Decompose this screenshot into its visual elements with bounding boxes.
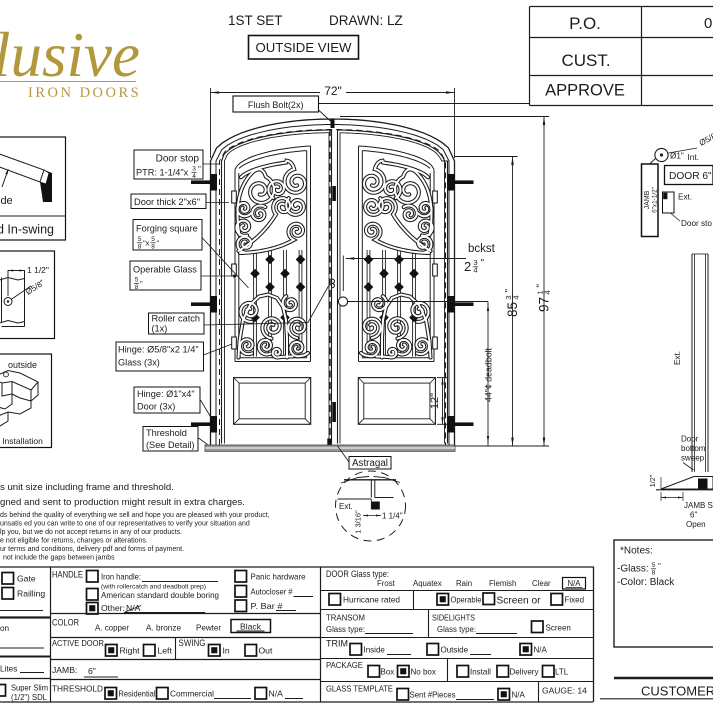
svg-text:6": 6" [88, 666, 96, 676]
svg-text:GAUGE: 14: GAUGE: 14 [542, 686, 587, 696]
svg-text:CUST.: CUST. [561, 51, 610, 70]
svg-text:Out: Out [259, 646, 273, 656]
svg-text:Ext.: Ext. [673, 351, 682, 365]
svg-text:ACTIVE DOOR: ACTIVE DOOR [52, 638, 104, 648]
svg-text:Iron handle:: Iron handle: [101, 572, 141, 582]
svg-text:Ext.: Ext. [678, 193, 692, 202]
svg-text:4: 4 [473, 266, 477, 275]
svg-text:Frost: Frost [377, 579, 396, 588]
svg-text:Inside: Inside [364, 646, 386, 655]
svg-text:outside: outside [8, 360, 37, 370]
svg-text:3: 3 [192, 166, 196, 173]
svg-text:PACKAGE: PACKAGE [326, 660, 363, 670]
svg-text:IRON DOORS: IRON DOORS [28, 85, 141, 101]
svg-text:A. bronze: A. bronze [146, 623, 181, 633]
svg-text:Door thick 2"x6": Door thick 2"x6" [134, 197, 200, 207]
svg-text:1 1/4": 1 1/4" [382, 512, 403, 521]
svg-text:sweep: sweep [681, 454, 705, 463]
svg-text:Railling: Railling [17, 589, 45, 599]
svg-text:Black: Black [240, 622, 262, 632]
svg-text:00: 00 [704, 15, 713, 32]
svg-text:5: 5 [135, 277, 139, 284]
svg-text:Door stop: Door stop [156, 154, 200, 165]
svg-text:on: on [0, 624, 10, 633]
svg-text:P.O.: P.O. [569, 14, 601, 33]
svg-text:(1/2") SDL: (1/2") SDL [11, 693, 48, 702]
svg-text:Operable: Operable [451, 596, 483, 605]
svg-text:N/A: N/A [534, 646, 548, 655]
svg-text:DOOR Glass type:: DOOR Glass type: [326, 569, 389, 579]
svg-text:Clear: Clear [532, 579, 551, 588]
svg-text:APPROVE: APPROVE [545, 82, 625, 100]
svg-text:Sent #Pieces: Sent #Pieces [410, 691, 456, 700]
svg-text:Left: Left [158, 646, 173, 656]
svg-text:Door sto: Door sto [681, 219, 712, 228]
svg-text:OUTSIDE VIEW: OUTSIDE VIEW [256, 40, 353, 55]
svg-text:4: 4 [543, 290, 552, 294]
svg-text:ur terms and conditions, deliv: ur terms and conditions, delivery pdf an… [0, 546, 184, 553]
svg-text:8: 8 [151, 244, 155, 251]
svg-text:Other:: Other: [101, 603, 125, 613]
svg-text:Fixed: Fixed [565, 596, 585, 605]
svg-text:Ø1": Ø1" [670, 152, 684, 161]
svg-text:8: 8 [652, 570, 656, 577]
svg-text:Astragal: Astragal [352, 458, 388, 469]
svg-text:No box: No box [411, 668, 436, 677]
svg-text:1 1/2": 1 1/2" [27, 265, 49, 275]
svg-text:GLASS TEMPLATE: GLASS TEMPLATE [326, 684, 393, 694]
svg-text:44"¢ deadbolt: 44"¢ deadbolt [484, 347, 494, 402]
svg-text:SWING: SWING [179, 638, 206, 648]
svg-text:TRIM: TRIM [326, 639, 348, 649]
svg-text:A. copper: A. copper [95, 623, 129, 633]
svg-text:N/A: N/A [512, 691, 526, 700]
svg-text:2: 2 [464, 259, 471, 274]
svg-text:1 3/16": 1 3/16" [354, 510, 363, 534]
svg-text:bckst: bckst [468, 243, 496, 255]
svg-text:Gate: Gate [17, 574, 36, 584]
svg-text:not include the gaps between j: not include the gaps between jambs [3, 555, 115, 562]
svg-text:Glass type:: Glass type: [437, 624, 476, 634]
svg-text:Delivery: Delivery [510, 668, 539, 677]
svg-text:American standard double borin: American standard double boring [101, 590, 219, 600]
svg-text:6"x1-1/2": 6"x1-1/2" [652, 187, 659, 213]
svg-text:LTL: LTL [555, 668, 569, 677]
svg-text:": " [157, 239, 160, 248]
svg-text:bottom: bottom [681, 444, 706, 453]
svg-text:5: 5 [138, 236, 142, 243]
svg-text:6": 6" [690, 511, 697, 520]
svg-text:": " [658, 562, 661, 571]
svg-text:e not eligible for returns, ch: e not eligible for returns, changes or a… [0, 538, 148, 545]
svg-text:Roller catch: Roller catch [152, 314, 201, 324]
svg-text:DRAWN: LZ: DRAWN: LZ [329, 13, 403, 28]
svg-text:5: 5 [652, 562, 656, 569]
svg-text:-Glass:: -Glass: [617, 564, 649, 575]
svg-text:": " [504, 289, 515, 293]
svg-text:JAMB: JAMB [644, 190, 651, 209]
svg-text:8: 8 [138, 244, 142, 251]
svg-text:Flush Bolt(2x): Flush Bolt(2x) [248, 100, 304, 110]
svg-text:Glass (3x): Glass (3x) [118, 358, 160, 368]
svg-text:8: 8 [135, 284, 139, 291]
svg-text:r Installation: r Installation [0, 436, 43, 446]
svg-text:Install: Install [470, 668, 491, 677]
svg-text:N/A: N/A [568, 579, 582, 588]
svg-text:(1x): (1x) [152, 324, 168, 334]
svg-text:JAMB:: JAMB: [52, 665, 77, 675]
svg-text:Hurricane rated: Hurricane rated [343, 596, 400, 605]
svg-text:1/2": 1/2" [648, 474, 657, 487]
svg-text:Aquatex: Aquatex [413, 579, 442, 588]
svg-text:4: 4 [192, 173, 196, 180]
svg-text:s unit size including frame an: s unit size including frame and threshol… [0, 482, 174, 493]
svg-text:*Notes:: *Notes: [620, 546, 653, 557]
svg-text:97: 97 [537, 297, 552, 312]
svg-text:12": 12" [429, 393, 441, 409]
svg-text:Door (3x): Door (3x) [137, 402, 175, 412]
svg-text:JAMB S: JAMB S [684, 501, 713, 510]
svg-text:d In-swing: d In-swing [0, 223, 54, 237]
svg-text:1ST SET: 1ST SET [228, 13, 283, 28]
svg-text:N/A: N/A [269, 689, 284, 699]
svg-text:Forging square: Forging square [136, 224, 198, 234]
svg-text:72": 72" [324, 84, 342, 98]
svg-text:Panic hardware: Panic hardware [251, 572, 306, 582]
svg-text:In: In [223, 646, 230, 656]
svg-text:Flemish: Flemish [489, 579, 516, 588]
svg-text:Screen: Screen [546, 624, 571, 633]
svg-text:"x: "x [143, 239, 150, 248]
svg-text:Glass type:: Glass type: [326, 624, 365, 634]
svg-text:ide: ide [0, 195, 13, 207]
svg-text:lp you, but we do not accept r: lp you, but we do not accept returns in … [0, 529, 182, 536]
svg-text:Threshold: Threshold [146, 428, 187, 438]
svg-text:Right: Right [120, 646, 141, 656]
svg-text:Ext.: Ext. [339, 502, 353, 511]
svg-text:5: 5 [151, 236, 155, 243]
svg-text:Commercial: Commercial [170, 689, 214, 699]
svg-text:4: 4 [511, 295, 520, 299]
svg-text:COLOR: COLOR [52, 618, 79, 628]
svg-text:": " [198, 165, 201, 174]
svg-text:Door: Door [681, 435, 699, 444]
svg-text:SIDELIGHTS: SIDELIGHTS [432, 613, 475, 623]
svg-text:Hinge: Ø1"x4": Hinge: Ø1"x4" [137, 389, 195, 399]
svg-text:N/A: N/A [126, 603, 141, 613]
svg-text:Rain: Rain [456, 579, 472, 588]
svg-text:Screen or: Screen or [497, 596, 542, 607]
svg-text:Hinge: Ø5/8"x2 1/4": Hinge: Ø5/8"x2 1/4" [118, 345, 199, 355]
svg-text:Pewter: Pewter [196, 623, 221, 633]
svg-text:Outside: Outside [441, 646, 469, 655]
svg-text:": " [481, 258, 485, 269]
svg-text:": " [140, 279, 143, 288]
svg-text:": " [536, 284, 547, 288]
svg-text:Box: Box [381, 668, 395, 677]
svg-text:lusive: lusive [0, 20, 140, 90]
svg-text:ds behind the quality of every: ds behind the quality of everything we s… [0, 512, 270, 519]
svg-text:(See Detail): (See Detail) [146, 440, 195, 450]
svg-text:Int.: Int. [688, 153, 699, 162]
svg-text:THRESHOLD: THRESHOLD [52, 684, 103, 694]
svg-text:Residential: Residential [119, 689, 156, 699]
svg-text:TRANSOM: TRANSOM [326, 613, 365, 623]
svg-text:-Color: Black: -Color: Black [617, 577, 675, 588]
svg-text:PTR: 1-1/4"x: PTR: 1-1/4"x [136, 168, 189, 178]
svg-text:DOOR 6": DOOR 6" [669, 171, 712, 182]
svg-text:Autocloser #: Autocloser # [251, 587, 293, 597]
svg-text:Lites: Lites [0, 665, 17, 674]
svg-text:Open: Open [686, 520, 706, 529]
svg-text:unsatis ed you can write to on: unsatis ed you can write to one of our r… [0, 521, 250, 528]
svg-text:gned and sent to production mi: gned and sent to production might result… [0, 497, 245, 508]
svg-text:CUSTOMERS: CUSTOMERS [641, 684, 713, 699]
svg-text:Operable Glass: Operable Glass [133, 265, 197, 275]
svg-text:85: 85 [505, 302, 520, 317]
svg-text:HANDLE: HANDLE [52, 570, 83, 580]
svg-text:P. Bar #: P. Bar # [251, 601, 283, 611]
svg-text:Super Slim: Super Slim [11, 684, 48, 693]
